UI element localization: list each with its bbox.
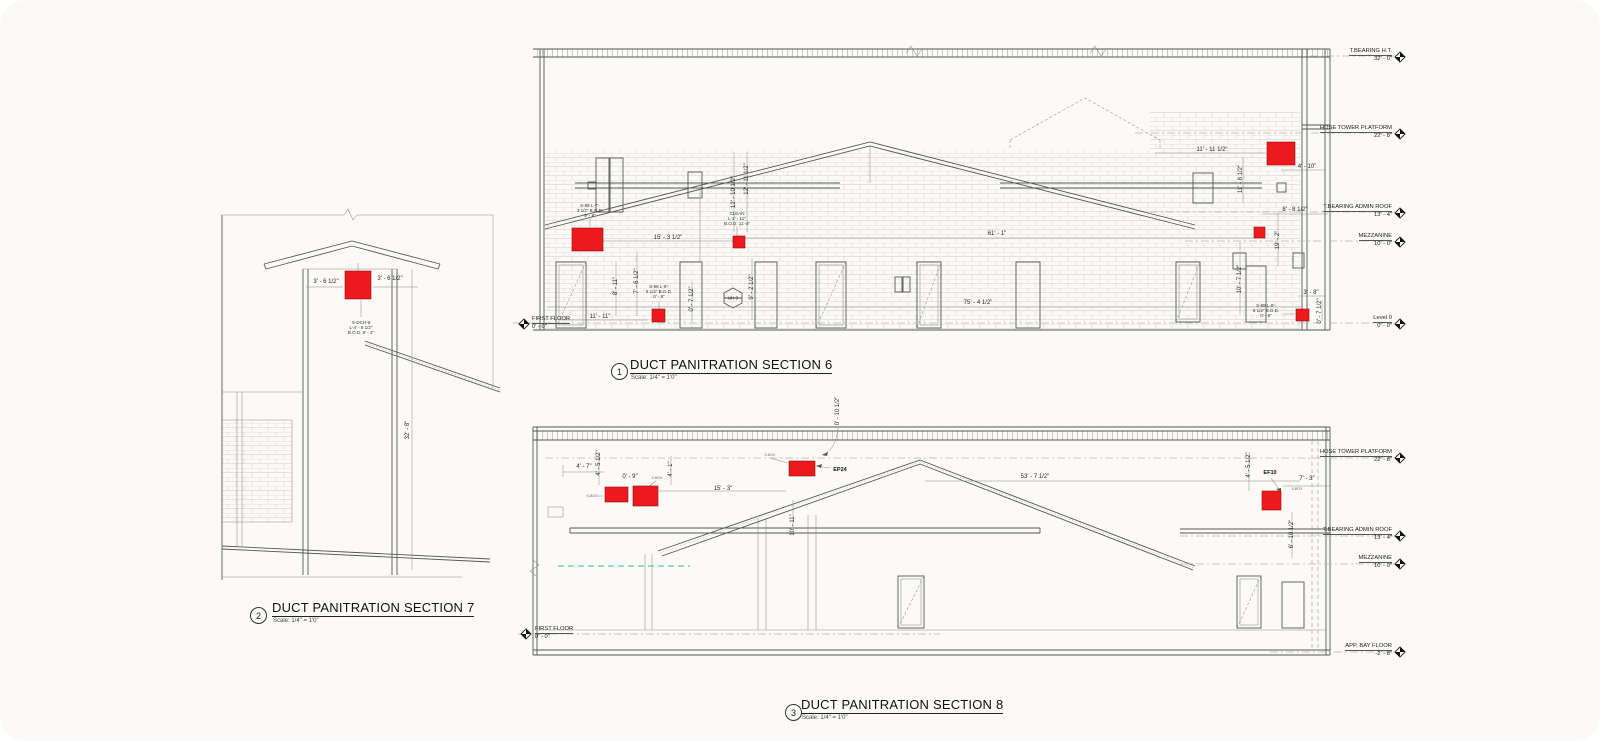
- elevation-marker: MEZZANINE 10' - 0": [1280, 233, 1392, 248]
- elevation-name: Level 0: [1373, 315, 1392, 323]
- elevation-value: 0' - 0": [1280, 323, 1392, 330]
- drawing-sheet: 15' - 3 1/2" 61' - 1" 75' - 4 1/2" 11' -…: [0, 0, 1600, 741]
- dim-label: 4' - 7": [576, 464, 591, 470]
- duct-penetration-s8-c: [789, 461, 815, 476]
- duct-penetration-s7-a: [345, 271, 371, 299]
- elevation-value: 0' - 0": [535, 634, 605, 641]
- duct-note: S-88 L-7'- 3 1/2" B.O.D. 9' - 8": [577, 203, 603, 218]
- duct-note: S-DCH-9 L-4' - 8 1/2" B.O.D. 9' - 2": [348, 320, 374, 335]
- dim-label: 8' - 11": [613, 277, 619, 295]
- elevation-name: HOSE TOWER PLATFORM: [1320, 125, 1392, 133]
- duct-penetration-s8-b: [633, 486, 658, 506]
- dim-label: 4' - 10": [1298, 164, 1317, 170]
- elevation-marker: FIRST FLOOR 0' - 0": [532, 316, 602, 331]
- elevation-target-icon: [1395, 559, 1406, 570]
- elevation-value: 22' - 8": [1280, 133, 1392, 140]
- dim-label: 12' - 10 1/2": [731, 176, 737, 208]
- elevation-target-icon: [1395, 52, 1406, 63]
- elevation-target-icon: [1395, 237, 1406, 248]
- elevation-name: T.BEARING H.T.: [1349, 48, 1392, 56]
- elevation-marker: Level 0 0' - 0": [1280, 315, 1392, 330]
- elevation-target-icon: [1395, 647, 1406, 658]
- viewport-number-text: 2: [256, 611, 261, 621]
- dim-label: 0' - 9": [622, 474, 637, 480]
- elevation-name: MEZZANINE: [1359, 233, 1393, 241]
- viewport-number: 1: [611, 363, 628, 380]
- elevation-target-icon: [1395, 208, 1406, 219]
- elevation-target-icon: [1395, 531, 1406, 542]
- viewport-number-text: 1: [617, 367, 622, 377]
- elevation-value: 10' - 0": [1280, 563, 1392, 570]
- viewport-number-text: 3: [791, 708, 796, 718]
- dim-label: 15' - 3": [714, 486, 733, 492]
- brick-hatch-section7: [222, 420, 292, 522]
- dim-label: 53' - 7 1/2": [1021, 474, 1050, 480]
- elevation-value: 13' - 4": [1280, 535, 1392, 542]
- dim-label: 4' - 5 1/2": [1246, 452, 1252, 477]
- elevation-marker: T.BEARING H.T. 32' - 0": [1280, 48, 1392, 63]
- dim-label: 12' - 11 1/2": [744, 163, 750, 195]
- equipment-tag: EP24: [833, 467, 846, 473]
- dim-label: 11' - 11 1/2": [1196, 147, 1227, 153]
- small-tag: S-BOX: [587, 494, 598, 498]
- elevation-name: HOSE TOWER PLATFORM: [1320, 449, 1392, 457]
- elevation-marker: T.BEARING ADMIN ROOF 13' - 4": [1280, 527, 1392, 542]
- elevation-marker: HOSE TOWER PLATFORM 22' - 8": [1280, 449, 1392, 464]
- duct-note: S-88 L-9'- 9 1/2" B.O.D. 0' - 9": [1253, 303, 1279, 318]
- elevation-marker: FIRST FLOOR 0' - 0": [535, 626, 605, 641]
- small-tag: S-BOX: [765, 453, 776, 457]
- elevation-marker: MEZZANINE 10' - 0": [1280, 555, 1392, 570]
- unit-heater-tag: UH 3: [728, 296, 738, 301]
- note-line: 0' - 8": [646, 294, 672, 299]
- elevation-marker: HOSE TOWER PLATFORM 22' - 8": [1280, 125, 1392, 140]
- dim-label: 7' - 6 1/2": [634, 268, 640, 293]
- elevation-value: 10' - 0": [1280, 241, 1392, 248]
- dim-label: 10' - 11": [790, 514, 796, 536]
- dim-label: 0' - 7 1/2": [689, 286, 695, 311]
- elevation-target-icon: [519, 319, 530, 330]
- roof-band-section6: [533, 49, 1330, 57]
- elevation-target-icon: [521, 629, 532, 640]
- note-line: 9' - 8": [577, 213, 603, 218]
- note-line: B.O.D. 9' - 2": [348, 330, 374, 335]
- duct-penetration-s6-a: [572, 228, 603, 251]
- elevation-target-icon: [1395, 319, 1406, 330]
- dim-label: 0' - 10 1/2": [835, 397, 841, 426]
- dim-label: 3' - 8": [1303, 290, 1318, 296]
- duct-penetration-s8-d: [1262, 491, 1281, 510]
- dim-label: 61' - 1": [988, 231, 1007, 237]
- dim-label: 15' - 3 1/2": [654, 235, 683, 241]
- duct-penetration-s6-d: [1267, 142, 1295, 165]
- equipment-tag: EF10: [1263, 470, 1276, 476]
- section-title: DUCT PANITRATION SECTION 8: [801, 697, 1003, 714]
- elevation-name: FIRST FLOOR: [535, 626, 573, 634]
- elevation-marker: T.BEARING ADMIN ROOF 13' - 4": [1280, 204, 1392, 219]
- duct-penetration-s6-c: [652, 309, 665, 322]
- dim-label: 10' - 7 1/2": [1237, 265, 1243, 294]
- elevation-name: APP. BAY FLOOR: [1345, 643, 1392, 651]
- dim-label: 9' - 2 1/2": [749, 274, 755, 299]
- small-tag: S-BOX: [652, 476, 663, 480]
- roof-band-section8: [533, 431, 1330, 440]
- elevation-value: 22' - 8": [1280, 457, 1392, 464]
- elevation-target-icon: [1395, 453, 1406, 464]
- section-title: DUCT PANITRATION SECTION 7: [272, 600, 474, 617]
- elevation-name: T.BEARING ADMIN ROOF: [1323, 204, 1392, 212]
- elevation-target-icon: [1395, 129, 1406, 140]
- dim-label: 4' - 5 1/2": [596, 450, 602, 475]
- section-title: DUCT PANITRATION SECTION 6: [630, 357, 832, 374]
- duct-penetration-s8-a: [605, 487, 628, 502]
- dim-label: 3' - 6 1/2": [313, 279, 338, 285]
- note-line: B.O.D. 11'-4": [724, 221, 750, 226]
- viewport-number: 2: [250, 607, 267, 624]
- elevation-value: -2' - 8": [1280, 651, 1392, 658]
- viewport-number: 3: [785, 704, 802, 721]
- dim-label: 3' - 6 1/2": [377, 276, 402, 282]
- uh-label: UH: [728, 296, 735, 301]
- dim-label: 11' - 8 1/2": [1238, 165, 1244, 193]
- small-tag: S-BOX: [1292, 487, 1303, 491]
- elevation-name: MEZZANINE: [1359, 555, 1393, 563]
- dim-label: 75' - 4 1/2": [964, 300, 993, 306]
- section-scale: Scale: 1/4" = 1'0": [802, 715, 848, 721]
- dim-label: 4' - 1": [668, 461, 674, 476]
- dim-label: 32' - 8": [405, 421, 411, 440]
- elevation-marker: APP. BAY FLOOR -2' - 8": [1280, 643, 1392, 658]
- elevation-name: T.BEARING ADMIN ROOF: [1323, 527, 1392, 535]
- elevation-value: 32' - 0": [1280, 56, 1392, 63]
- duct-penetration-s6-b: [733, 236, 745, 248]
- note-line: 0' - 9": [1253, 313, 1279, 318]
- duct-note: S-88 L-9'- 9 1/2" B.O.D. 0' - 8": [646, 284, 672, 299]
- dim-label: 7' - 3": [1299, 476, 1314, 482]
- uh-number: 3: [736, 296, 739, 301]
- elevation-name: FIRST FLOOR: [532, 316, 570, 324]
- elevation-value: 13' - 4": [1280, 212, 1392, 219]
- section-scale: Scale: 1/4" = 1'0": [631, 375, 677, 381]
- elevation-value: 0' - 0": [532, 324, 602, 331]
- section-scale: Scale: 1/4" = 1'0": [273, 618, 319, 624]
- duct-penetration-s6-e: [1254, 227, 1265, 238]
- duct-note: CLEAN L-2' - 11" B.O.D. 11'-4": [724, 211, 750, 226]
